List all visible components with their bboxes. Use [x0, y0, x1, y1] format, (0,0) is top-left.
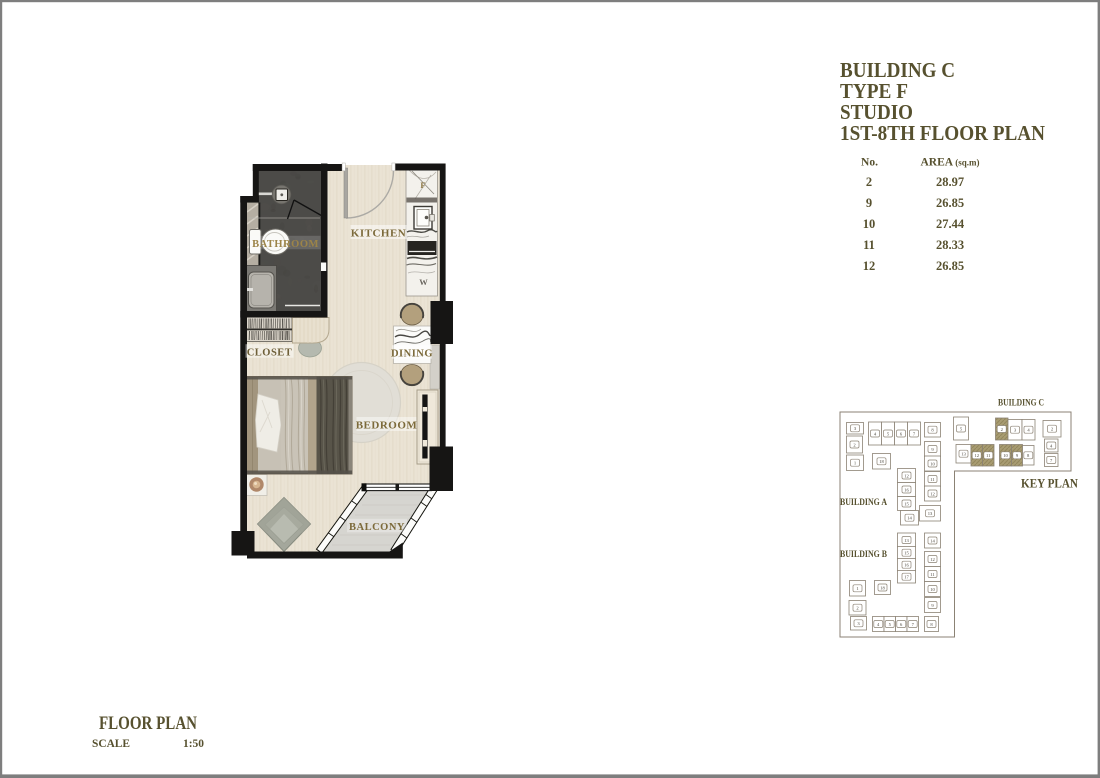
svg-text:18: 18 [879, 459, 884, 464]
svg-text:BUILDING C: BUILDING C [998, 399, 1044, 409]
svg-text:DINING: DINING [391, 348, 433, 359]
svg-text:16: 16 [904, 487, 909, 492]
svg-text:W: W [419, 277, 428, 287]
svg-text:10: 10 [1003, 453, 1008, 458]
svg-text:11: 11 [863, 238, 875, 252]
svg-text:18: 18 [880, 585, 885, 590]
svg-text:14: 14 [930, 538, 935, 543]
svg-text:17: 17 [904, 575, 909, 580]
svg-text:10: 10 [930, 461, 935, 466]
svg-text:BALCONY: BALCONY [349, 522, 405, 533]
svg-text:BUILDING B: BUILDING B [840, 550, 888, 560]
svg-text:26.85: 26.85 [936, 259, 964, 273]
svg-text:CLOSET: CLOSET [247, 347, 293, 358]
svg-text:KITCHEN: KITCHEN [351, 228, 406, 240]
svg-text:12: 12 [863, 259, 876, 273]
svg-text:16: 16 [904, 563, 909, 568]
svg-text:11: 11 [930, 572, 935, 577]
svg-text:KEY PLAN: KEY PLAN [1021, 476, 1079, 491]
svg-text:11: 11 [986, 453, 991, 458]
svg-text:13: 13 [904, 538, 909, 543]
svg-text:14: 14 [907, 516, 912, 521]
svg-text:27.44: 27.44 [936, 217, 965, 231]
svg-text:15: 15 [904, 551, 909, 556]
svg-text:13: 13 [928, 511, 933, 516]
svg-text:1ST-8TH FLOOR PLAN: 1ST-8TH FLOOR PLAN [840, 121, 1045, 145]
svg-text:FLOOR PLAN: FLOOR PLAN [99, 713, 197, 734]
svg-text:26.85: 26.85 [936, 196, 964, 210]
svg-text:SCALE: SCALE [92, 738, 130, 750]
svg-text:12: 12 [930, 557, 935, 562]
svg-text:15: 15 [904, 501, 909, 506]
svg-text:12: 12 [930, 491, 935, 496]
svg-text:28.97: 28.97 [936, 175, 964, 189]
svg-text:10: 10 [930, 587, 935, 592]
svg-text:11: 11 [930, 477, 935, 482]
svg-text:10: 10 [863, 217, 876, 231]
svg-text:9: 9 [866, 196, 872, 210]
svg-text:BEDROOM: BEDROOM [356, 420, 418, 432]
svg-text:No.: No. [861, 157, 878, 169]
svg-text:AREA (sq.m): AREA (sq.m) [920, 157, 979, 169]
svg-text:F: F [420, 180, 425, 190]
svg-text:12: 12 [904, 473, 909, 478]
svg-text:BUILDING A: BUILDING A [840, 498, 887, 508]
svg-text:BATHROOM: BATHROOM [252, 239, 319, 250]
svg-text:2: 2 [866, 175, 872, 189]
svg-text:12: 12 [975, 453, 980, 458]
svg-text:13: 13 [961, 452, 966, 457]
svg-text:1:50: 1:50 [183, 738, 204, 750]
svg-text:28.33: 28.33 [936, 238, 964, 252]
